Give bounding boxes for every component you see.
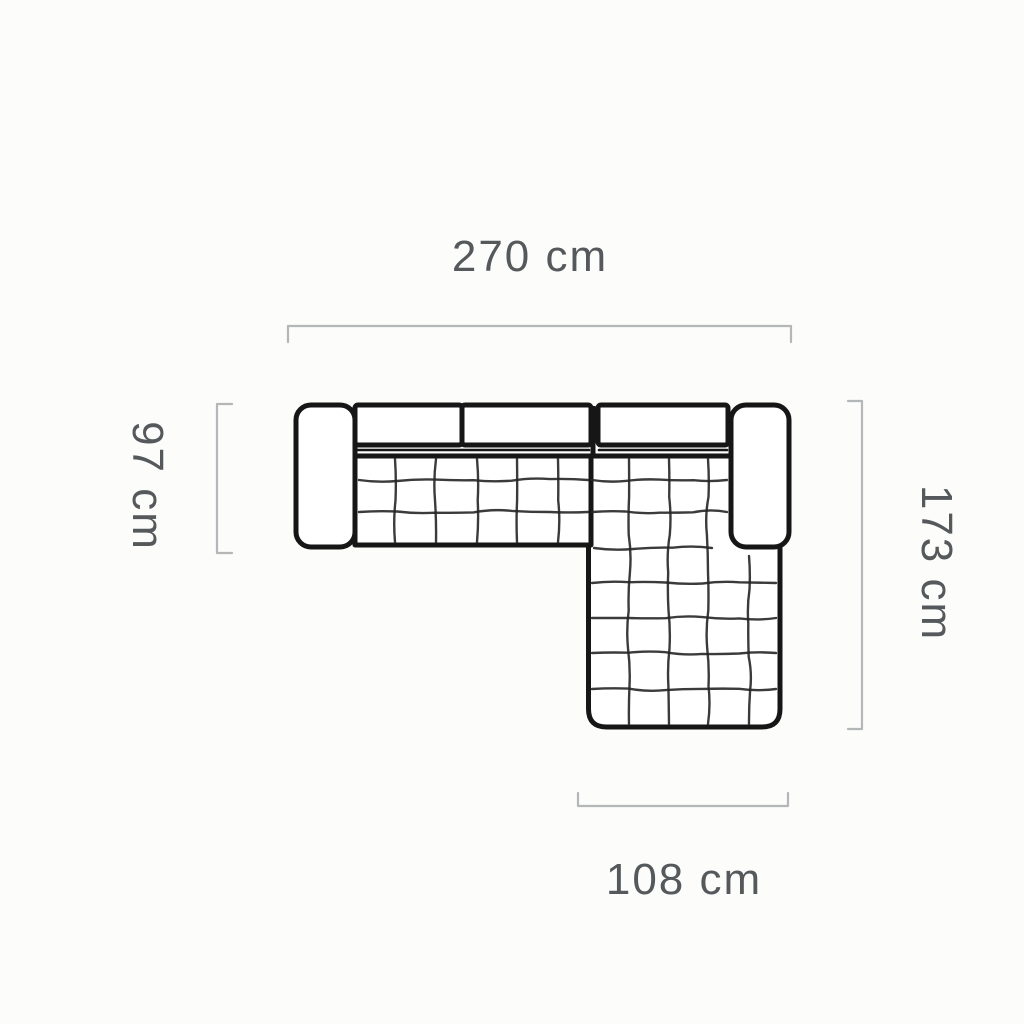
dimension-line-top	[288, 326, 791, 342]
dimension-line-right	[848, 401, 862, 729]
dimension-line-left	[217, 404, 232, 553]
back-cushion-middle	[462, 405, 591, 445]
left-armrest	[296, 405, 355, 547]
quilt-line-vertical	[558, 459, 559, 542]
dimension-label-chaise-width: 108 cm	[606, 855, 762, 905]
right-armrest	[731, 405, 789, 547]
quilt-line-vertical	[477, 459, 478, 542]
sofa-dimension-diagram: 270 cm 97 cm 173 cm 108 cm	[0, 0, 1024, 1024]
dimension-line-bottom	[578, 793, 788, 806]
back-cushion-right	[598, 405, 728, 445]
dimension-label-total-depth: 173 cm	[911, 485, 961, 641]
dimension-label-sofa-depth: 97 cm	[122, 421, 172, 551]
quilt-line-vertical	[517, 459, 518, 542]
main-seat-section	[355, 456, 591, 545]
back-cushion-left	[355, 405, 462, 445]
dimension-label-total-width: 270 cm	[452, 232, 608, 282]
